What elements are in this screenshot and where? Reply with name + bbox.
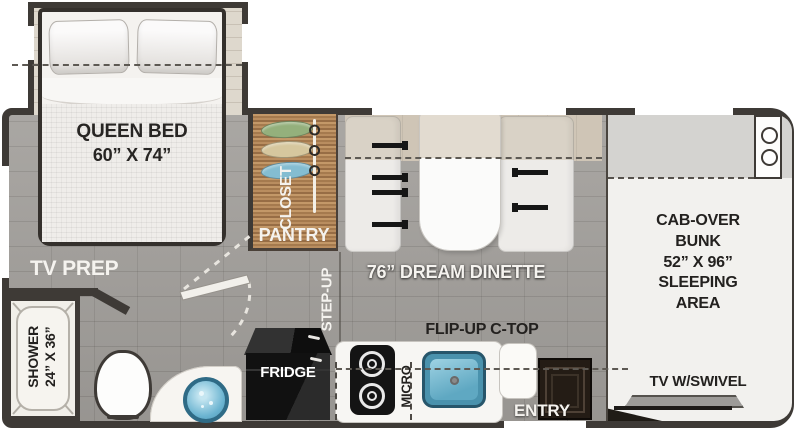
- kitchen-sink: [422, 351, 486, 408]
- dinette-bench-left: [345, 116, 401, 252]
- dinette-table: [420, 112, 500, 250]
- cooktop: [350, 345, 395, 415]
- seatbelt-icon: [518, 170, 548, 175]
- kitchen-counter: [336, 342, 502, 422]
- bath-sink: [183, 377, 229, 423]
- dinette-slide-line: [345, 157, 602, 159]
- step-up-label: STEP-UP: [319, 260, 336, 340]
- entry-label: ENTRY: [514, 401, 570, 421]
- pillow-icon: [136, 19, 217, 75]
- toilet: [94, 350, 152, 420]
- queen-bed: QUEEN BED 60” X 74”: [38, 8, 226, 246]
- cupholder-icon: [761, 149, 778, 166]
- fridge: FRIDGE: [244, 328, 332, 420]
- rv-floorplan: 76” DREAM DINETTE CLOSET PANTRY STEP-UP …: [0, 0, 800, 430]
- window: [372, 108, 566, 115]
- pantry-label: PANTRY: [252, 225, 336, 246]
- step-edge-line: [339, 252, 341, 344]
- shower-label: SHOWER 24” X 36”: [25, 309, 59, 405]
- burner-icon: [359, 383, 385, 409]
- dinette-bench-right: [498, 116, 574, 252]
- seatbelt-icon: [372, 190, 402, 195]
- window: [242, 24, 248, 62]
- bathroom-wall: [2, 288, 98, 296]
- flip-up-label: FLIP-UP C-TOP: [412, 321, 552, 339]
- fridge-label: FRIDGE: [244, 364, 332, 381]
- pillow-icon: [48, 19, 129, 75]
- cab-over-bunk: CAB-OVER BUNK 52” X 96” SLEEPING AREA TV…: [606, 115, 792, 421]
- cab-bunk-line: [608, 177, 754, 179]
- seatbelt-icon: [372, 222, 402, 227]
- cab-console: [754, 115, 782, 179]
- tv-swivel-label: TV W/SWIVEL: [618, 373, 778, 390]
- counter-flip-line: [336, 368, 628, 370]
- entry-door-opening: [504, 421, 586, 428]
- tv-prep-label: TV PREP: [30, 257, 118, 281]
- seatbelt-icon: [372, 143, 402, 148]
- queen-bed-label: QUEEN BED 60” X 74”: [42, 120, 222, 166]
- window: [635, 108, 733, 115]
- dinette-label: 76” DREAM DINETTE: [350, 262, 562, 283]
- bedroom-slide-line: [12, 64, 242, 66]
- micro-label: MICRO: [399, 352, 414, 422]
- drain-icon: [450, 376, 459, 385]
- micro-dash-left: [335, 362, 337, 420]
- window: [28, 26, 34, 60]
- flip-up-countertop: [500, 344, 536, 398]
- hanger-icon: [261, 120, 314, 140]
- tv-base: [614, 406, 732, 410]
- seatbelt-icon: [372, 175, 402, 180]
- cab-over-label: CAB-OVER BUNK 52” X 96” SLEEPING AREA: [618, 211, 778, 315]
- seatbelt-icon: [518, 205, 548, 210]
- burner-icon: [359, 351, 385, 377]
- cupholder-icon: [761, 127, 778, 144]
- window: [2, 166, 9, 278]
